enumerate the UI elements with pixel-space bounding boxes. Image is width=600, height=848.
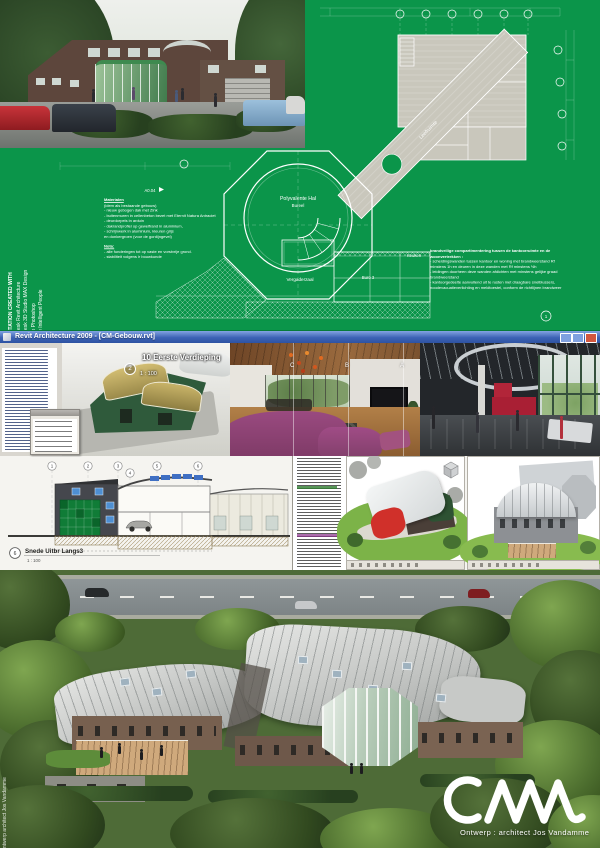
sheet-list-rows <box>297 458 341 568</box>
side-credit: Ontwerp architect Jos Vandamme <box>2 742 8 848</box>
exterior-photo-render <box>0 0 305 148</box>
list-highlight <box>297 534 337 537</box>
bush <box>580 541 596 554</box>
list-highlight <box>297 486 337 489</box>
skylight <box>120 677 131 686</box>
cutaway-opening <box>158 413 172 425</box>
green-plan-sheet: Polyvalente Hal Bureel Vergaderzaal Buro… <box>0 0 600 330</box>
fire-note-line: - scheidingswanden tussen kantoor en won… <box>430 259 566 269</box>
section-scale: 1 : 100 <box>27 558 41 563</box>
person <box>118 746 121 754</box>
fire-safety-note: brandveilige compartimentering tussen de… <box>430 249 566 291</box>
sheet-ref-label: A0.04 <box>145 188 157 193</box>
model-deck <box>508 543 556 558</box>
window-band <box>78 726 216 736</box>
revit-workspace: 2 10 Eerste Verdieping 1 : 100 <box>0 343 600 457</box>
grid-letter-b: B <box>345 363 349 369</box>
revit-screenshot: Revit Architecture 2009 - [CM-Gebouw.rvt… <box>0 330 600 457</box>
cutaway-opening <box>120 409 132 423</box>
fire-note-title: brandveilige compartimentering tussen de… <box>430 249 566 259</box>
fire-note-line: - kantoorgedeelte aanvullend uit te rust… <box>430 280 566 290</box>
white-car <box>286 96 305 114</box>
person <box>476 415 479 433</box>
sheet-list-panel <box>292 456 348 570</box>
car <box>468 589 490 598</box>
skylight <box>152 687 163 696</box>
grey-tree <box>367 456 381 469</box>
grid-letter-c: C <box>290 363 294 369</box>
properties-dialog <box>30 409 80 455</box>
photo-window <box>36 78 45 85</box>
photo-window <box>52 78 61 85</box>
person <box>560 419 563 439</box>
person <box>214 96 217 107</box>
minimize-button <box>560 333 572 343</box>
cutaway-white-roof <box>179 346 233 377</box>
person <box>350 766 353 774</box>
credits-tool: 2 - Autodesk 3D Studio MAX Design <box>23 150 31 330</box>
grid-bubble-1: 1 <box>545 314 548 319</box>
red-car <box>0 106 50 130</box>
brown-wall <box>418 722 523 758</box>
tree <box>55 612 125 652</box>
person <box>175 93 178 102</box>
photo-window <box>128 48 140 57</box>
credits-list: PRESENTATION CREATED WITH 1 - Autodesk R… <box>8 150 50 330</box>
skylight <box>436 693 447 702</box>
room-label-office: Buro 3 <box>362 275 375 280</box>
dining-set <box>266 399 312 411</box>
grid-line <box>403 343 404 457</box>
room-label-kitchen: Keuken <box>407 253 422 258</box>
model-window-strip <box>500 519 570 528</box>
photo-window <box>255 65 266 73</box>
dark-car <box>52 104 116 132</box>
sofa <box>318 427 382 457</box>
photo-window <box>208 65 219 73</box>
credits-tool: 1 - Autodesk Revit Architecture <box>16 150 24 330</box>
photo-window <box>88 48 100 57</box>
fire-note-line: - leidingen doorheen deze wanden afdicht… <box>430 270 566 280</box>
window-title: Revit Architecture 2009 - [CM-Gebouw.rvt… <box>15 331 155 343</box>
tower-mullions <box>322 688 418 766</box>
car <box>85 588 109 597</box>
cutaway-3d-view: 2 10 Eerste Verdieping 1 : 100 <box>62 343 230 457</box>
pendant-lights <box>285 347 327 377</box>
revit-titlebar: Revit Architecture 2009 - [CM-Gebouw.rvt… <box>0 331 600 343</box>
room-label-hall: Polyvalente Hal <box>280 196 316 202</box>
nota-line: - stabiliteit volgens ir bouwkunde <box>104 255 232 260</box>
architect-credit: Ontwerp : architect Jos Vandamme <box>460 828 589 837</box>
revit-app-icon <box>3 333 11 341</box>
tree <box>170 798 335 848</box>
photo-window <box>70 80 79 87</box>
view-scale: 1 : 100 <box>140 371 157 377</box>
building-section-drawing: 1 2 3 4 5 6 6 Snede Uitbr Langs3 1 : 100 <box>0 456 292 570</box>
dialog-rows <box>33 419 77 452</box>
view-toolbar-icons <box>351 563 421 567</box>
close-button <box>585 333 597 343</box>
view-toolbar <box>347 560 464 569</box>
person <box>516 413 519 431</box>
grey-tree <box>349 461 367 479</box>
person <box>92 92 95 102</box>
room-label-bureel: Bureel <box>292 203 305 208</box>
photo-window <box>108 48 120 57</box>
car <box>295 601 317 609</box>
sidewalk <box>0 575 600 579</box>
credits-tool: 3 - Adobe Photoshop <box>31 150 39 330</box>
bush <box>472 545 488 558</box>
room-label-meeting: Vergaderzaal <box>286 277 313 282</box>
materials-note: Materialen (idem als bestaande gebouw) -… <box>104 198 232 260</box>
skylight <box>402 662 412 671</box>
grid-letter-a: A <box>400 363 404 369</box>
sheet-ref-arrow <box>159 187 164 192</box>
grid-line <box>348 343 349 457</box>
person <box>432 409 435 429</box>
presentation-board: Polyvalente Hal Bureel Vergaderzaal Buro… <box>0 0 600 848</box>
credits-heading: PRESENTATION CREATED WITH <box>8 150 16 330</box>
skylight <box>298 656 308 665</box>
dialog-titlebar <box>31 410 79 416</box>
photo-window <box>148 48 160 57</box>
person <box>140 752 143 760</box>
viewcube-icon <box>442 461 460 479</box>
view-toolbar-icons <box>472 563 542 567</box>
view-number-bubble: 2 <box>124 363 136 375</box>
view-title: 10 Eerste Verdieping <box>142 353 221 362</box>
architect-logo-block: Ontwerp : architect Jos Vandamme <box>432 770 597 845</box>
section-view-number: 6 <box>14 551 17 557</box>
person <box>132 90 135 100</box>
person <box>160 748 163 756</box>
glass-tower <box>322 688 418 766</box>
person <box>100 750 103 758</box>
person <box>360 766 363 774</box>
person <box>181 91 184 100</box>
interior-render-living: C B A <box>230 343 420 457</box>
bush <box>347 533 363 547</box>
grid-line <box>293 343 294 457</box>
skylight <box>186 669 197 678</box>
model-view-grey <box>467 456 600 570</box>
drawings-row: 1 2 3 4 5 6 6 Snede Uitbr Langs3 1 : 100 <box>0 456 600 570</box>
annex-roof <box>438 674 527 728</box>
view-toolbar <box>468 560 599 569</box>
credits-tool: 4 - A Few Intelligent People <box>38 150 46 330</box>
skylight <box>332 670 342 679</box>
model-view-color <box>346 456 465 570</box>
window-band <box>422 733 519 743</box>
cm-logo <box>432 770 592 826</box>
section-title: Snede Uitbr Langs3 <box>25 548 84 555</box>
aerial-render: Ontwerp : architect Jos Vandamme Ontwerp… <box>0 570 600 848</box>
maximize-button <box>572 333 584 343</box>
interior-render-lobby <box>420 343 600 457</box>
bush <box>443 535 461 549</box>
